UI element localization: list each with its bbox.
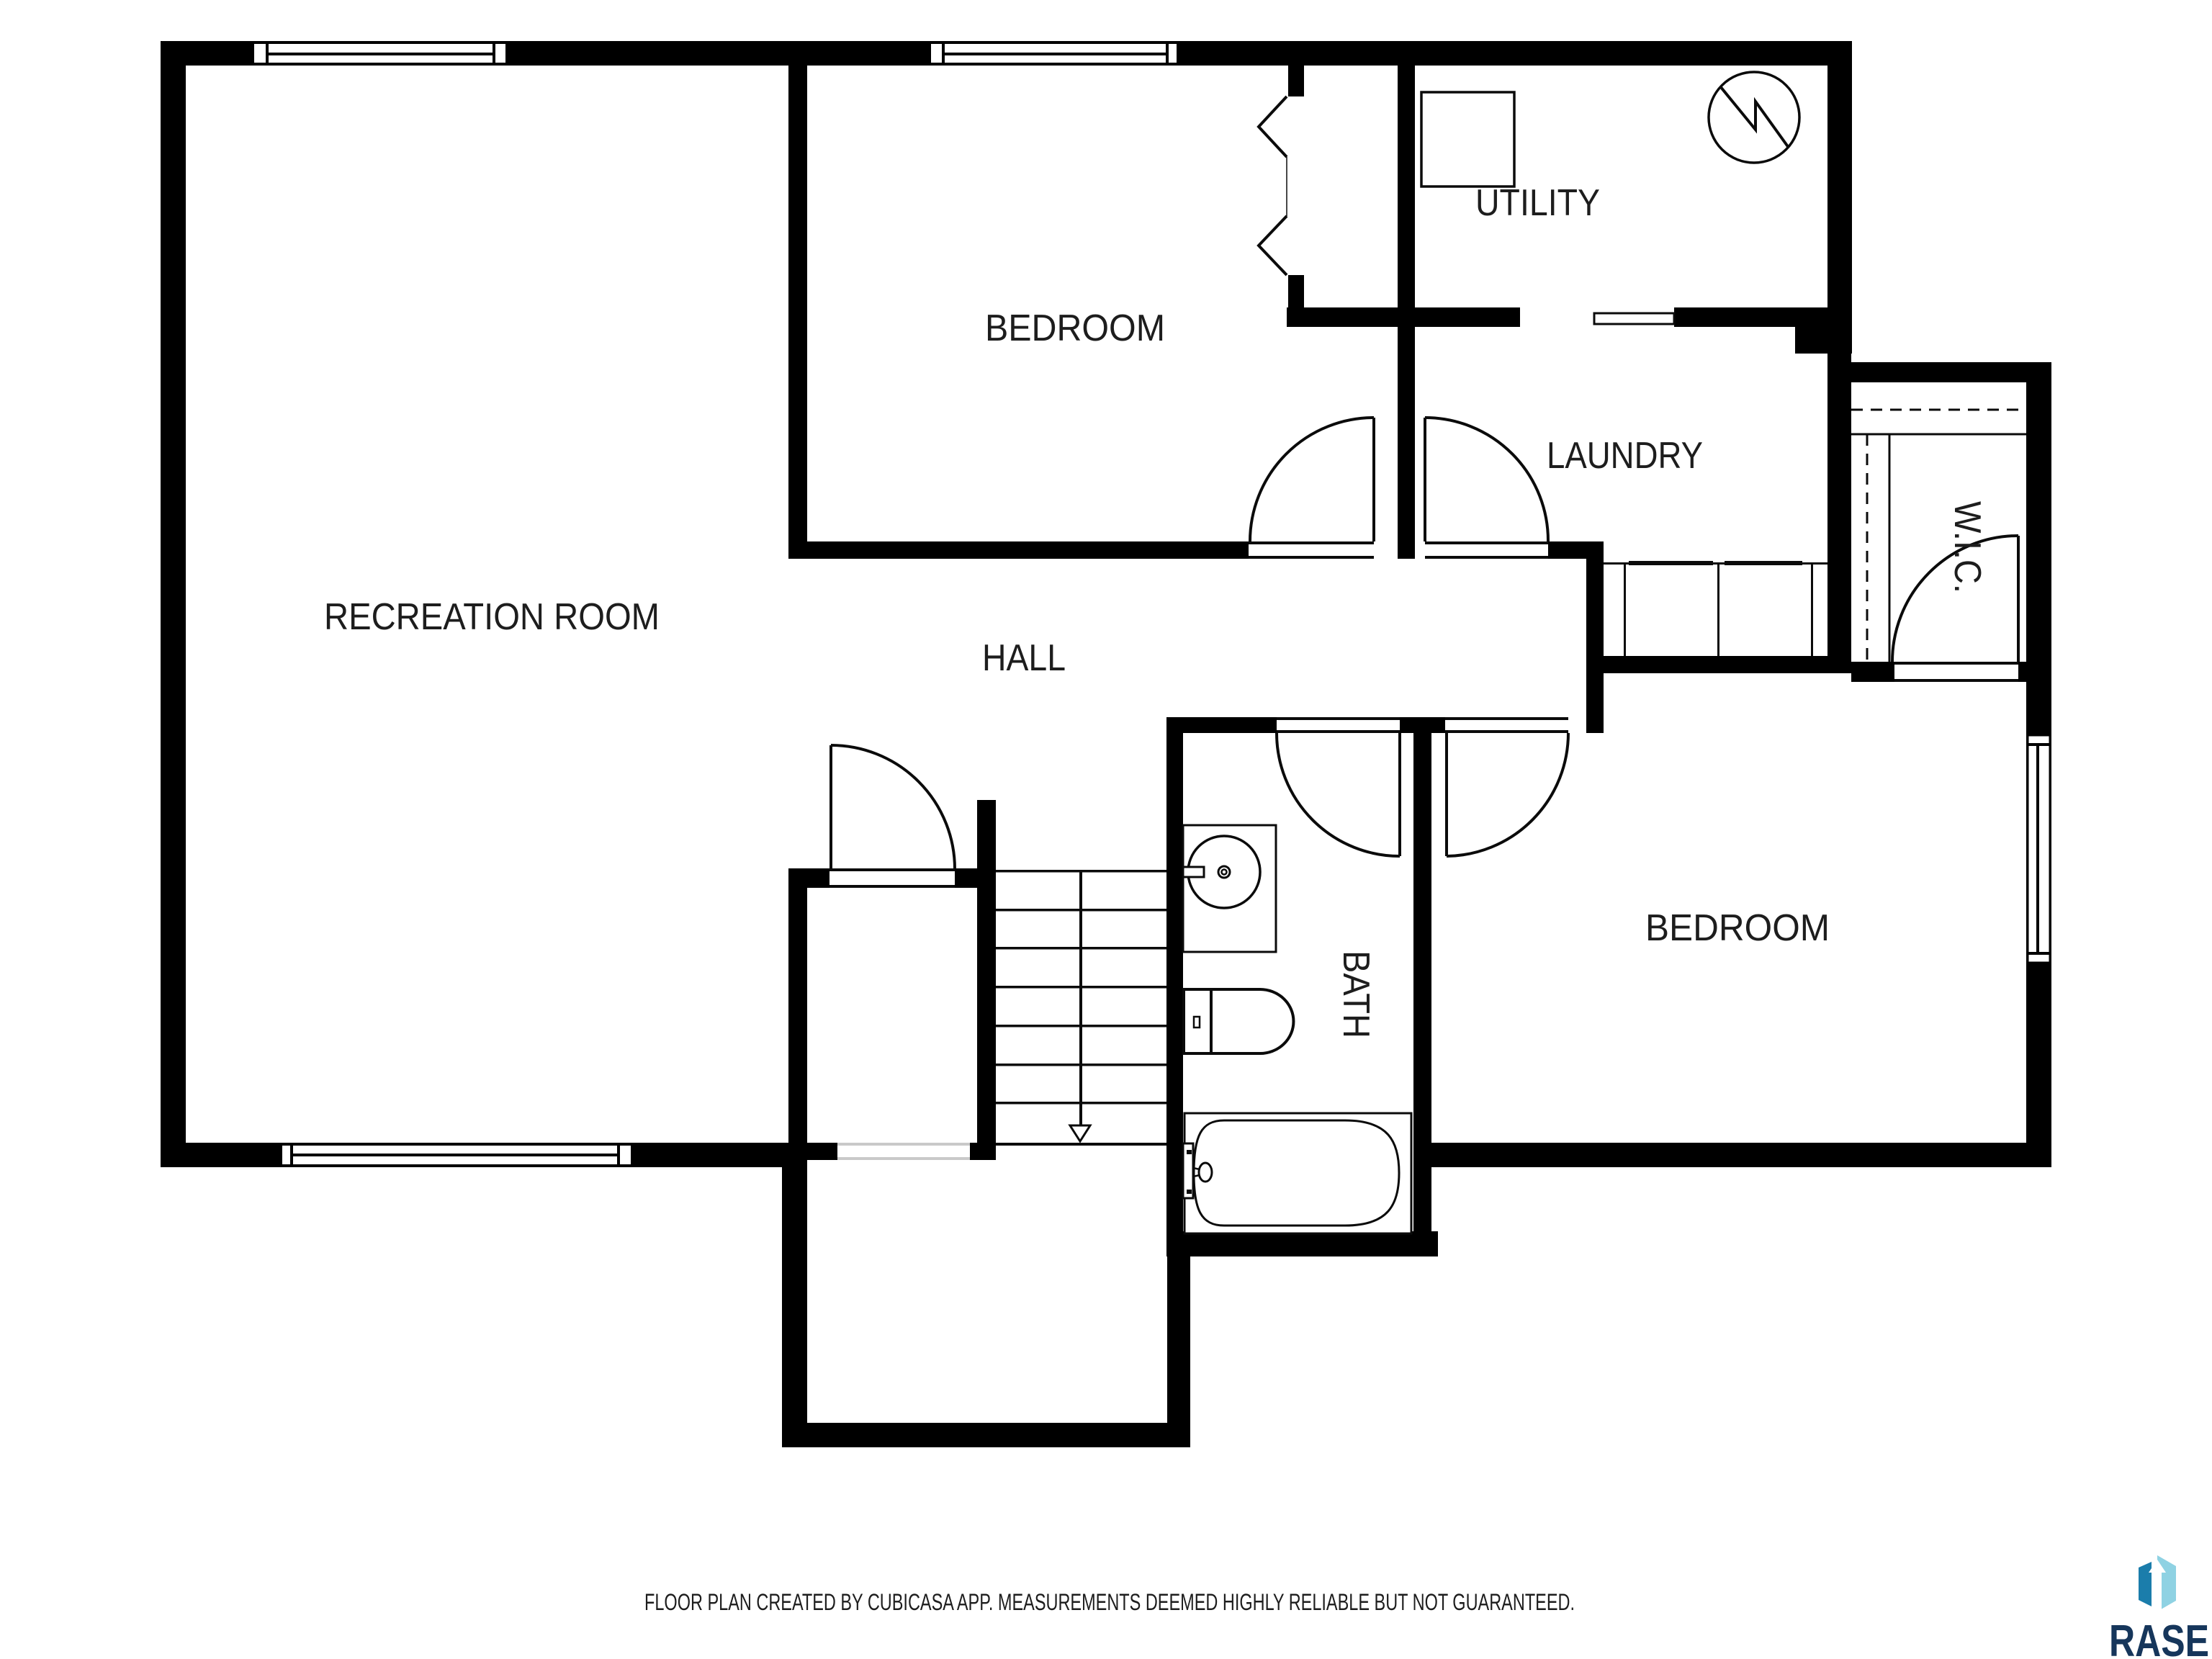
svg-text:RASE: RASE xyxy=(2109,1617,2209,1659)
svg-text:HALL: HALL xyxy=(982,637,1066,679)
svg-text:FLOOR PLAN CREATED BY CUBICASA: FLOOR PLAN CREATED BY CUBICASA APP. MEAS… xyxy=(644,1589,1575,1615)
svg-text:BEDROOM: BEDROOM xyxy=(1645,907,1830,949)
svg-text:BEDROOM: BEDROOM xyxy=(985,307,1165,349)
svg-text:LAUNDRY: LAUNDRY xyxy=(1547,435,1703,477)
svg-text:UTILITY: UTILITY xyxy=(1475,182,1600,224)
svg-text:RECREATION ROOM: RECREATION ROOM xyxy=(324,596,660,638)
svg-text:W.I.C.: W.I.C. xyxy=(1946,501,1988,593)
svg-text:BATH: BATH xyxy=(1335,950,1377,1038)
